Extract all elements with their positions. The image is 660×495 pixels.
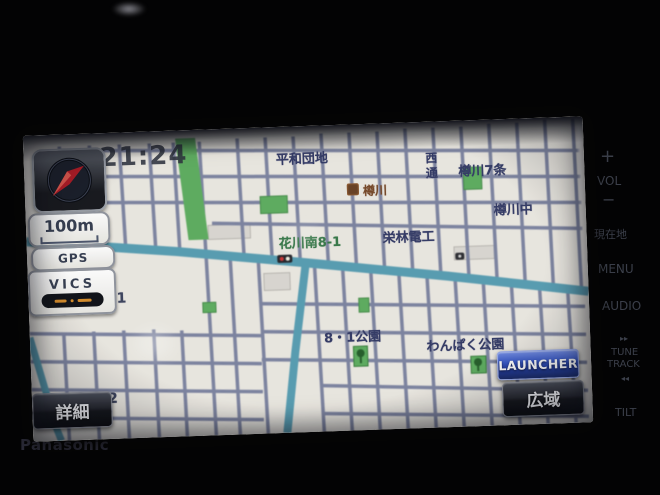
traffic-signal-icon <box>277 255 292 264</box>
map-label-wanpaku-park: わんぱく公園 <box>426 333 505 355</box>
park-icon <box>471 356 487 374</box>
wide-zoom-button[interactable]: 広域 <box>502 379 585 417</box>
map-label-eirin-denko: 栄林電工 <box>382 226 435 247</box>
hw-button-tilt[interactable]: TILT <box>615 406 636 419</box>
hw-button-seek-back[interactable]: ◂◂ <box>621 374 629 383</box>
launcher-label: LAUNCHER <box>498 356 578 374</box>
hw-button-vol-minus[interactable]: − <box>602 190 615 209</box>
vics-status-bar <box>41 292 103 308</box>
map-label-nishi-dori: 西通 <box>423 151 441 182</box>
vics-panel: VICS <box>28 268 118 317</box>
hw-button-seek-forward[interactable]: ▸▸ <box>620 334 628 343</box>
compass-icon <box>40 154 100 206</box>
map-label-tarukawa-chu: 樽川中 <box>493 198 533 218</box>
vics-mark <box>70 299 73 302</box>
map-label-hanakawa-minami-8-1: 花川南8-1 <box>278 231 341 252</box>
clock: 21:24 <box>99 140 188 173</box>
hw-button-audio[interactable]: AUDIO <box>602 299 641 313</box>
hw-button-vol-plus[interactable]: + <box>600 146 615 167</box>
vics-mark <box>77 298 91 301</box>
hw-label-track: TRACK <box>607 359 640 370</box>
map-label-heiwa-danchi: 平和団地 <box>275 147 328 168</box>
park-icon <box>353 346 368 366</box>
hw-button-current-location[interactable]: 現在地 <box>594 226 627 242</box>
map-label-tarukawa: 樽川 <box>363 181 388 199</box>
bezel-reflection <box>112 2 146 16</box>
map-label-block-1: 1 <box>116 290 126 306</box>
map-label-tarukawa-7jo: 樽川7条 <box>458 159 507 180</box>
photo-of-car-navigation: { "device": { "brand": "Panasonic", "sid… <box>0 0 660 495</box>
gps-label: GPS <box>58 251 89 266</box>
vics-mark <box>54 299 66 302</box>
vics-label: VICS <box>49 276 96 293</box>
landmark-icon <box>347 183 359 195</box>
compass-button[interactable] <box>31 147 107 214</box>
hw-label-tune: TUNE <box>611 347 638 358</box>
launcher-button[interactable]: LAUNCHER <box>497 349 580 381</box>
detail-zoom-button[interactable]: 詳細 <box>32 391 113 430</box>
scale-bar <box>40 235 98 244</box>
hw-button-menu[interactable]: MENU <box>598 262 634 276</box>
scale-label: 100m <box>44 215 95 236</box>
detail-zoom-label: 詳細 <box>55 397 90 423</box>
poi-dot-icon <box>455 253 464 260</box>
map-label-8-1-park: 8・1公園 <box>324 325 382 346</box>
scale-button[interactable]: 100m <box>28 211 111 248</box>
navigation-screen[interactable]: 平和団地 樽川7条 西通 樽川中 樽川 花川南8-1 栄林電工 8・1公園 わん… <box>23 116 593 441</box>
wide-zoom-label: 広域 <box>526 385 561 411</box>
hw-label-vol: VOL <box>597 174 621 188</box>
